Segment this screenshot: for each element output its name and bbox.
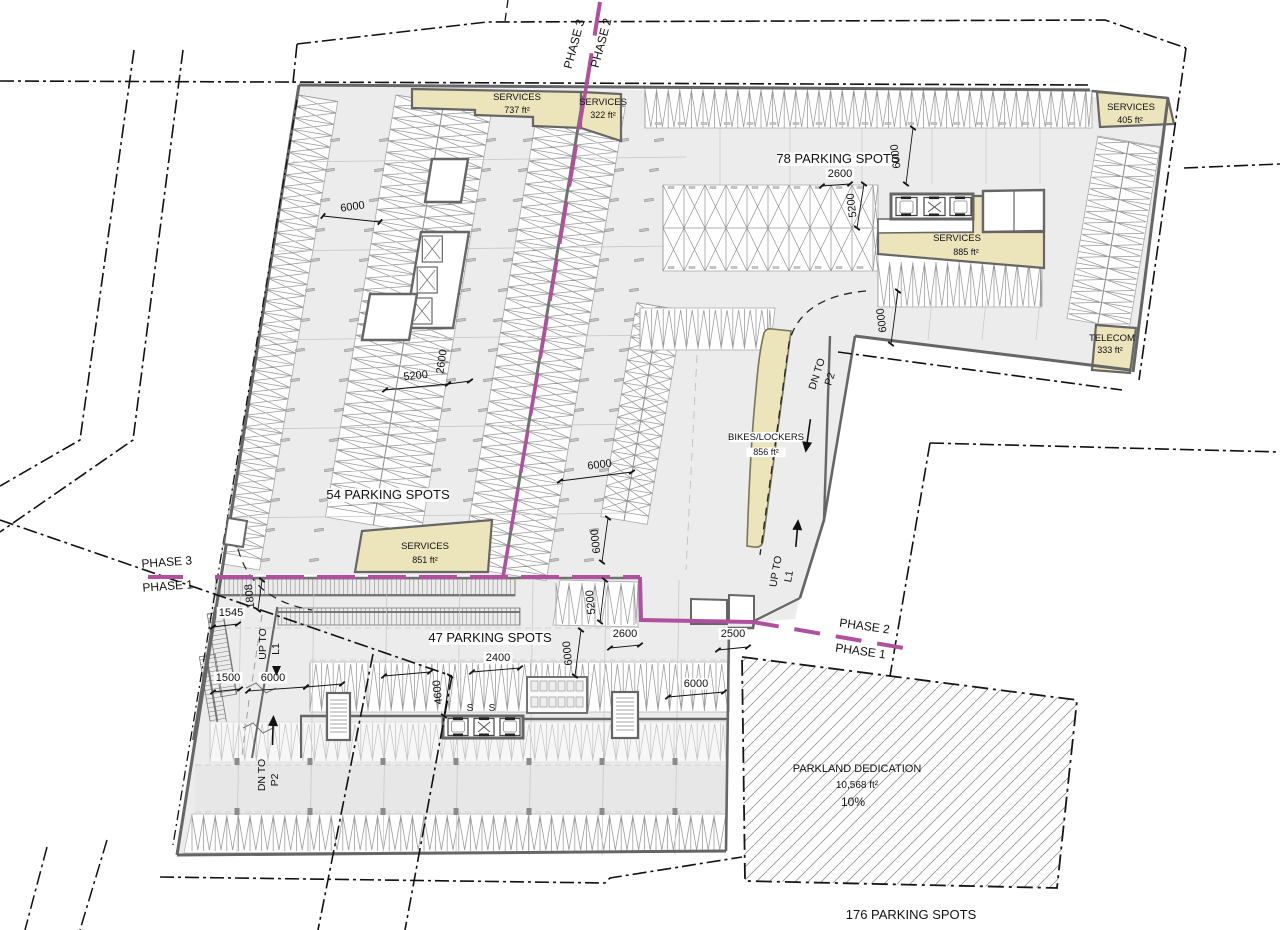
svg-text:737 ft²: 737 ft² xyxy=(504,105,530,115)
svg-text:78 PARKING SPOTS: 78 PARKING SPOTS xyxy=(776,151,900,166)
svg-text:405 ft²: 405 ft² xyxy=(1117,115,1143,125)
svg-text:2600: 2600 xyxy=(613,628,637,640)
svg-text:SERVICES: SERVICES xyxy=(401,541,449,552)
svg-text:PARKLAND DEDICATION: PARKLAND DEDICATION xyxy=(793,763,922,775)
svg-text:5200: 5200 xyxy=(584,590,598,616)
svg-text:6000: 6000 xyxy=(589,529,603,555)
svg-text:851 ft²: 851 ft² xyxy=(412,555,438,565)
svg-text:2400: 2400 xyxy=(486,652,510,664)
svg-text:856 ft²: 856 ft² xyxy=(753,447,779,457)
svg-text:S: S xyxy=(489,703,496,714)
svg-text:54 PARKING SPOTS: 54 PARKING SPOTS xyxy=(326,487,450,502)
svg-text:SERVICES: SERVICES xyxy=(933,233,981,244)
svg-text:2600: 2600 xyxy=(828,168,852,180)
svg-text:6000: 6000 xyxy=(561,641,575,667)
svg-text:322 ft²: 322 ft² xyxy=(590,110,616,120)
svg-text:1500: 1500 xyxy=(216,672,240,684)
svg-text:UP TO: UP TO xyxy=(257,628,269,660)
svg-text:1545: 1545 xyxy=(219,607,243,619)
svg-text:S: S xyxy=(467,703,474,714)
svg-text:4600: 4600 xyxy=(431,680,445,706)
svg-text:2500: 2500 xyxy=(721,628,745,640)
svg-text:TELECOM: TELECOM xyxy=(1089,333,1135,344)
svg-text:DN TO: DN TO xyxy=(256,759,268,791)
svg-text:P2: P2 xyxy=(269,773,281,786)
svg-text:L1: L1 xyxy=(782,570,796,584)
svg-text:SERVICES: SERVICES xyxy=(493,92,541,103)
svg-text:333 ft²: 333 ft² xyxy=(1097,345,1123,355)
svg-text:176 PARKING SPOTS: 176 PARKING SPOTS xyxy=(846,907,977,922)
svg-text:BIKES/LOCKERS: BIKES/LOCKERS xyxy=(728,432,804,443)
svg-text:1808: 1808 xyxy=(243,584,257,610)
svg-text:L1: L1 xyxy=(270,643,282,655)
svg-text:SERVICES: SERVICES xyxy=(1107,102,1155,113)
svg-text:47 PARKING SPOTS: 47 PARKING SPOTS xyxy=(428,630,552,645)
svg-text:SERVICES: SERVICES xyxy=(579,97,627,108)
svg-text:6000: 6000 xyxy=(261,672,285,684)
svg-text:5200: 5200 xyxy=(403,369,429,383)
svg-text:885 ft²: 885 ft² xyxy=(953,247,979,257)
svg-text:10%: 10% xyxy=(841,795,865,809)
svg-text:6000: 6000 xyxy=(684,678,708,690)
svg-text:10,568 ft²: 10,568 ft² xyxy=(836,780,879,791)
